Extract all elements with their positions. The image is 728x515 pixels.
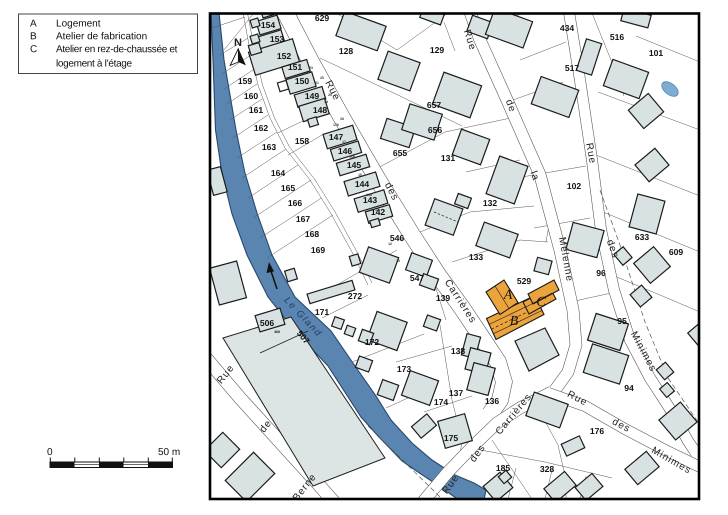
svg-text:10: 10 <box>396 259 400 263</box>
svg-text:12: 12 <box>388 242 392 246</box>
svg-text:175: 175 <box>444 433 459 443</box>
svg-text:655: 655 <box>393 148 408 158</box>
svg-text:176: 176 <box>590 426 605 436</box>
svg-text:129: 129 <box>430 45 445 55</box>
svg-text:logement à l’étage: logement à l’étage <box>56 58 133 69</box>
svg-text:25: 25 <box>320 76 324 80</box>
svg-text:162: 162 <box>254 123 269 133</box>
svg-text:169: 169 <box>311 245 326 255</box>
svg-text:94: 94 <box>624 383 634 393</box>
svg-text:131: 131 <box>441 153 456 163</box>
svg-text:168: 168 <box>305 229 320 239</box>
svg-text:101: 101 <box>649 48 664 58</box>
svg-text:159: 159 <box>238 76 253 86</box>
svg-text:21: 21 <box>315 81 319 85</box>
svg-text:154: 154 <box>261 20 276 30</box>
svg-text:657: 657 <box>427 100 442 110</box>
svg-text:A: A <box>503 288 513 303</box>
svg-text:158: 158 <box>295 136 310 146</box>
svg-text:C: C <box>30 44 37 55</box>
svg-text:174: 174 <box>434 397 449 407</box>
svg-text:Atelier en rez-de-chaussée et: Atelier en rez-de-chaussée et <box>56 44 178 55</box>
svg-text:328: 328 <box>540 464 555 474</box>
svg-text:164: 164 <box>271 168 286 178</box>
svg-text:656: 656 <box>428 125 443 135</box>
svg-text:28: 28 <box>340 117 344 121</box>
svg-text:17b: 17b <box>333 123 339 127</box>
svg-text:Atelier de fabrication: Atelier de fabrication <box>56 31 147 42</box>
svg-text:Logement: Logement <box>56 18 101 29</box>
svg-text:139: 139 <box>436 293 451 303</box>
svg-text:C: C <box>536 295 546 310</box>
svg-text:A: A <box>30 18 37 29</box>
svg-text:19: 19 <box>324 100 328 104</box>
svg-text:171: 171 <box>315 307 330 317</box>
svg-text:15: 15 <box>358 173 362 177</box>
svg-text:23: 23 <box>309 66 313 70</box>
svg-text:165: 165 <box>281 183 296 193</box>
svg-text:517: 517 <box>565 63 580 73</box>
svg-text:95: 95 <box>617 316 627 326</box>
svg-text:102: 102 <box>567 181 582 191</box>
svg-text:N: N <box>234 37 242 49</box>
svg-text:149: 149 <box>305 91 320 101</box>
svg-text:145: 145 <box>347 160 362 170</box>
svg-text:152: 152 <box>277 51 292 61</box>
svg-text:17: 17 <box>342 140 346 144</box>
svg-text:173: 173 <box>397 364 412 374</box>
svg-text:13b: 13b <box>366 193 372 197</box>
svg-text:516: 516 <box>610 32 625 42</box>
svg-text:144: 144 <box>355 179 370 189</box>
svg-text:166: 166 <box>288 198 303 208</box>
svg-text:546: 546 <box>390 233 405 243</box>
svg-text:167: 167 <box>296 214 311 224</box>
svg-text:368: 368 <box>274 330 280 334</box>
svg-text:137: 137 <box>449 388 464 398</box>
svg-text:172: 172 <box>365 337 380 347</box>
svg-text:185: 185 <box>496 463 511 473</box>
svg-text:15b: 15b <box>349 155 355 159</box>
svg-text:272: 272 <box>348 291 363 301</box>
svg-text:50 m: 50 m <box>158 447 180 458</box>
svg-text:160: 160 <box>244 91 259 101</box>
svg-text:B: B <box>30 31 37 42</box>
svg-text:96: 96 <box>596 268 606 278</box>
svg-text:609: 609 <box>669 247 684 257</box>
svg-text:151: 151 <box>288 62 303 72</box>
svg-text:13: 13 <box>375 208 379 212</box>
svg-text:163: 163 <box>262 142 277 152</box>
svg-text:434: 434 <box>560 23 575 33</box>
svg-text:150: 150 <box>295 76 310 86</box>
svg-text:161: 161 <box>249 105 264 115</box>
svg-text:133: 133 <box>469 252 484 262</box>
svg-text:0: 0 <box>47 447 53 458</box>
svg-text:547: 547 <box>410 273 425 283</box>
svg-text:153: 153 <box>270 34 285 44</box>
svg-text:148: 148 <box>313 105 328 115</box>
svg-text:128: 128 <box>339 46 354 56</box>
svg-text:B: B <box>510 314 519 329</box>
svg-text:506: 506 <box>260 318 275 328</box>
svg-text:529: 529 <box>517 276 532 286</box>
svg-text:132: 132 <box>483 198 498 208</box>
svg-text:136: 136 <box>485 396 500 406</box>
svg-text:138: 138 <box>451 346 466 356</box>
svg-text:633: 633 <box>635 232 650 242</box>
